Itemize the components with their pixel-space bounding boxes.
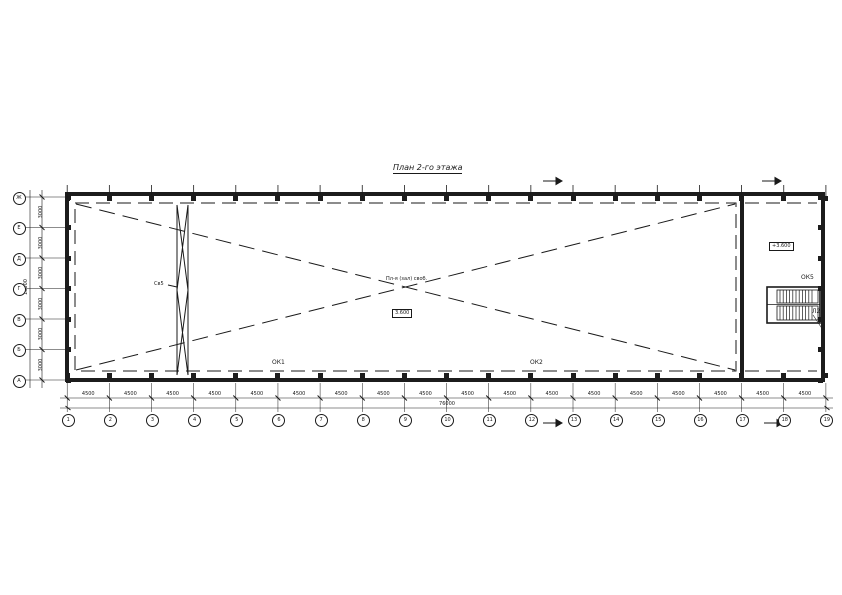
bay-dim-bottom: 4500	[573, 391, 615, 397]
axis-circle-bottom: 7	[315, 414, 328, 427]
stair-treads	[780, 290, 812, 320]
bay-dim-bottom: 4500	[404, 391, 446, 397]
bay-dim-left: 3000	[38, 231, 44, 255]
axis-circle-left: Е	[13, 222, 26, 235]
bay-dim-left: 3000	[38, 353, 44, 377]
bay-dim-bottom: 4500	[194, 391, 236, 397]
bay-dim-bottom: 4500	[657, 391, 699, 397]
bay-dim-left: 3000	[38, 322, 44, 346]
plan-linework	[0, 0, 842, 595]
bottom-total-dim: 76000	[407, 401, 487, 407]
bay-dim-bottom: 4500	[278, 391, 320, 397]
axis-circle-bottom: 10	[441, 414, 454, 427]
axis-circle-bottom: 2	[104, 414, 117, 427]
bay-dim-bottom: 4500	[320, 391, 362, 397]
axis-circle-left: Б	[13, 344, 26, 357]
axis-circle-bottom: 13	[568, 414, 581, 427]
axis-circle-bottom: 14	[610, 414, 623, 427]
bay-dim-bottom: 4500	[742, 391, 784, 397]
axis-circle-bottom: 3	[146, 414, 159, 427]
axis-ticks	[24, 185, 828, 412]
bay-dim-bottom: 4500	[531, 391, 573, 397]
bay-dim-left: 3000	[38, 200, 44, 224]
bay-dim-bottom: 4500	[447, 391, 489, 397]
axis-circle-left: Д	[13, 253, 26, 266]
bay-dim-bottom: 4500	[152, 391, 194, 397]
braced-column	[168, 205, 188, 375]
axis-circle-bottom: 15	[652, 414, 665, 427]
window-label-ok2: ОК2	[530, 359, 543, 366]
axis-circle-bottom: 8	[357, 414, 370, 427]
bay-dim-bottom: 4500	[699, 391, 741, 397]
axis-circle-bottom: 1	[62, 414, 75, 427]
bay-dim-bottom: 4500	[109, 391, 151, 397]
bay-dim-bottom: 4500	[67, 391, 109, 397]
bay-dim-bottom: 4500	[615, 391, 657, 397]
bay-dim-left: 3000	[38, 261, 44, 285]
section-marks	[543, 178, 783, 427]
brace-label: Св5	[154, 281, 164, 287]
stair-label: Л2	[812, 308, 820, 315]
window-label-ok5: ОК5	[801, 274, 814, 281]
axis-circle-bottom: 9	[399, 414, 412, 427]
window-label-ok1: ОК1	[272, 359, 285, 366]
axis-circle-left: Г	[13, 283, 26, 296]
center-note: Пл-я (зал) своб.	[386, 276, 427, 282]
bay-dim-bottom: 4500	[489, 391, 531, 397]
axis-circle-left: В	[13, 314, 26, 327]
bay-dim-bottom: 4500	[362, 391, 404, 397]
drawing-sheet: План 2-го этажа	[0, 0, 842, 595]
axis-circle-bottom: 16	[694, 414, 707, 427]
bay-dim-bottom: 4500	[236, 391, 278, 397]
axis-circle-left: Ж	[13, 192, 26, 205]
axis-circle-left: А	[13, 375, 26, 388]
bay-dim-bottom: 4500	[784, 391, 826, 397]
axis-circle-bottom: 17	[736, 414, 749, 427]
bay-dim-left: 3000	[38, 292, 44, 316]
